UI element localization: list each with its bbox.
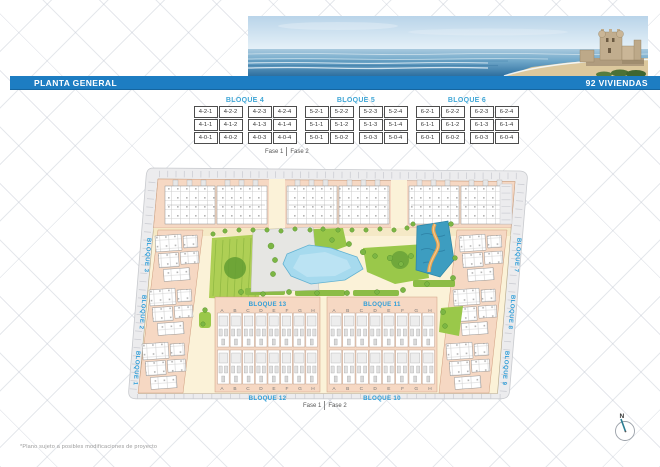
unit-letter: D bbox=[373, 308, 377, 314]
block-table-title: BLOQUE 5 bbox=[304, 97, 408, 104]
unit-cell: 4-2-3 bbox=[248, 106, 272, 118]
bloque-10-label: BLOQUE 10 bbox=[363, 395, 401, 402]
unit-letter: H bbox=[311, 386, 315, 392]
unit-letter: C bbox=[360, 386, 364, 392]
tree-icon bbox=[268, 243, 274, 249]
unit-cell: 6-0-2 bbox=[441, 132, 465, 144]
tree-icon bbox=[211, 232, 215, 236]
tree-icon bbox=[400, 287, 405, 292]
disclaimer-note: *Plano sujeto a posibles modificaciones … bbox=[20, 444, 157, 450]
tree-icon bbox=[223, 229, 227, 233]
unit-cell: 4-1-1 bbox=[194, 119, 218, 131]
tree-icon bbox=[440, 309, 445, 314]
unit-cell: 4-0-2 bbox=[219, 132, 243, 144]
unit-letter: C bbox=[360, 308, 364, 314]
fase2-label: Fase 2 bbox=[290, 149, 308, 155]
unit-letter: G bbox=[298, 308, 302, 314]
unit-letter: E bbox=[272, 386, 275, 392]
tree-icon bbox=[261, 292, 266, 297]
unit-cell: 6-2-3 bbox=[470, 106, 494, 118]
brochure-page: PLANTA GENERAL 92 VIVIENDAS BLOQUE 4 4-2… bbox=[0, 0, 660, 467]
unit-cell: 6-0-3 bbox=[470, 132, 494, 144]
page-title: PLANTA GENERAL bbox=[34, 78, 117, 88]
table-row: 4-1-14-1-24-1-34-1-4 bbox=[194, 119, 297, 131]
block-table-grid: 4-2-14-2-24-2-34-2-44-1-14-1-24-1-34-1-4… bbox=[193, 106, 297, 144]
unit-cell: 5-2-1 bbox=[305, 106, 329, 118]
unit-letter: H bbox=[428, 308, 432, 314]
tree-icon bbox=[408, 253, 413, 258]
tree-icon bbox=[411, 222, 415, 226]
tree-icon bbox=[344, 290, 349, 295]
unit-letter: E bbox=[387, 386, 390, 392]
unit-cell: 5-0-1 bbox=[305, 132, 329, 144]
unit-cell: 6-1-1 bbox=[416, 119, 440, 131]
unit-letter: F bbox=[286, 386, 289, 392]
hero-photo bbox=[248, 16, 648, 76]
unit-cell: 6-2-2 bbox=[441, 106, 465, 118]
phase-gap bbox=[244, 119, 247, 131]
unit-cell: 4-2-2 bbox=[219, 106, 243, 118]
tree-icon bbox=[270, 271, 275, 276]
phase-gap bbox=[244, 132, 247, 144]
unit-cell: 6-2-1 bbox=[416, 106, 440, 118]
tree-icon bbox=[321, 227, 325, 231]
tree-icon bbox=[360, 249, 366, 255]
units-count-label: 92 VIVIENDAS bbox=[586, 78, 648, 88]
unit-cell: 6-1-4 bbox=[495, 119, 519, 131]
tree-icon bbox=[392, 228, 396, 232]
tree-icon bbox=[405, 226, 409, 230]
unit-cell: 5-1-1 bbox=[305, 119, 329, 131]
bloque-11-label: BLOQUE 11 bbox=[363, 301, 401, 308]
table-row: 5-2-15-2-25-2-35-2-4 bbox=[305, 106, 408, 118]
unit-cell: 5-2-3 bbox=[359, 106, 383, 118]
tree-icon bbox=[237, 228, 241, 232]
block-table-grid: 5-2-15-2-25-2-35-2-45-1-15-1-25-1-35-1-4… bbox=[304, 106, 408, 144]
unit-letter: E bbox=[272, 308, 275, 314]
unit-cell: 6-1-3 bbox=[470, 119, 494, 131]
tree-icon bbox=[293, 227, 297, 231]
tree-icon bbox=[203, 308, 208, 313]
tree-icon bbox=[449, 222, 454, 227]
beach-photo-graphic bbox=[248, 16, 648, 76]
unit-letter: B bbox=[233, 386, 236, 392]
tree-icon bbox=[201, 322, 205, 326]
tree-icon bbox=[346, 241, 351, 246]
fase1-label: Fase 1 bbox=[265, 149, 283, 155]
site-plan: ABCDEFGH ABCDEFGH ABCDEFGH ABCDEFGH BLOQ… bbox=[95, 160, 570, 410]
unit-letter: F bbox=[286, 308, 289, 314]
block-table-6: BLOQUE 6 6-2-16-2-26-2-36-2-46-1-16-1-26… bbox=[415, 97, 519, 144]
unit-cell: 4-1-3 bbox=[248, 119, 272, 131]
phase-labels-top: Fase 1 Fase 2 bbox=[265, 147, 309, 156]
unit-letter: F bbox=[401, 308, 404, 314]
tree-icon bbox=[364, 228, 368, 232]
phase-gap bbox=[244, 106, 247, 118]
tree-icon bbox=[336, 228, 340, 232]
unit-cell: 6-1-2 bbox=[441, 119, 465, 131]
tree-icon bbox=[308, 228, 312, 232]
unit-letter: G bbox=[298, 386, 302, 392]
block-table-grid: 6-2-16-2-26-2-36-2-46-1-16-1-26-1-36-1-4… bbox=[415, 106, 519, 144]
unit-cell: 4-0-1 bbox=[194, 132, 218, 144]
table-row: 6-1-16-1-26-1-36-1-4 bbox=[416, 119, 519, 131]
tree-icon bbox=[330, 238, 335, 243]
block-table-4: BLOQUE 4 4-2-14-2-24-2-34-2-44-1-14-1-24… bbox=[193, 97, 297, 144]
unit-letter: B bbox=[346, 308, 349, 314]
tree-icon bbox=[375, 290, 380, 295]
phase-divider bbox=[286, 147, 287, 156]
block-table-title: BLOQUE 4 bbox=[193, 97, 297, 104]
table-row: 5-1-15-1-25-1-35-1-4 bbox=[305, 119, 408, 131]
tree-icon bbox=[286, 289, 291, 294]
north-compass: N bbox=[600, 410, 650, 460]
unit-letter: B bbox=[346, 386, 349, 392]
unit-letter: C bbox=[246, 386, 250, 392]
tree-icon bbox=[443, 324, 448, 329]
unit-cell: 5-1-2 bbox=[330, 119, 354, 131]
unit-cell: 5-0-3 bbox=[359, 132, 383, 144]
unit-letter: G bbox=[414, 308, 418, 314]
unit-letter: H bbox=[311, 308, 315, 314]
tree-icon bbox=[350, 228, 354, 232]
block-table-5: BLOQUE 5 5-2-15-2-25-2-35-2-45-1-15-1-25… bbox=[304, 97, 408, 144]
phase-gap bbox=[466, 119, 469, 131]
phase-gap bbox=[466, 106, 469, 118]
table-row: 4-2-14-2-24-2-34-2-4 bbox=[194, 106, 297, 118]
tree-icon bbox=[251, 228, 255, 232]
unit-cell: 5-0-4 bbox=[384, 132, 408, 144]
bloque-12-label: BLOQUE 12 bbox=[249, 395, 287, 402]
phase-gap bbox=[355, 132, 358, 144]
unit-letter: D bbox=[373, 386, 377, 392]
unit-letter: G bbox=[414, 386, 418, 392]
unit-letter: C bbox=[246, 308, 250, 314]
unit-letter: F bbox=[401, 386, 404, 392]
unit-cell: 4-1-2 bbox=[219, 119, 243, 131]
table-row: 5-0-15-0-25-0-35-0-4 bbox=[305, 132, 408, 144]
tree-icon bbox=[315, 291, 320, 296]
phase-gap bbox=[466, 132, 469, 144]
unit-letter: B bbox=[233, 308, 236, 314]
block-table-title: BLOQUE 6 bbox=[415, 97, 519, 104]
unit-cell: 5-1-4 bbox=[384, 119, 408, 131]
unit-letter: D bbox=[259, 308, 263, 314]
tree-icon bbox=[450, 275, 455, 280]
phase-gap bbox=[355, 106, 358, 118]
unit-cell: 6-2-4 bbox=[495, 106, 519, 118]
unit-cell: 6-0-1 bbox=[416, 132, 440, 144]
tree-icon bbox=[378, 227, 382, 231]
unit-letter: E bbox=[387, 308, 390, 314]
unit-cell: 6-0-4 bbox=[495, 132, 519, 144]
bloque-13-label: BLOQUE 13 bbox=[249, 301, 287, 308]
title-bar: PLANTA GENERAL 92 VIVIENDAS bbox=[10, 76, 660, 90]
unit-cell: 4-0-4 bbox=[273, 132, 297, 144]
tree-icon bbox=[279, 229, 283, 233]
site-plan-graphic: ABCDEFGH ABCDEFGH ABCDEFGH ABCDEFGH BLOQ… bbox=[95, 160, 570, 410]
tree-icon bbox=[453, 256, 458, 261]
table-row: 6-0-16-0-26-0-36-0-4 bbox=[416, 132, 519, 144]
tree-icon bbox=[238, 289, 243, 294]
tree-icon bbox=[373, 254, 378, 259]
unit-letter: H bbox=[428, 386, 432, 392]
unit-cell: 5-2-4 bbox=[384, 106, 408, 118]
tree-icon bbox=[387, 255, 393, 261]
unit-cell: 5-2-2 bbox=[330, 106, 354, 118]
unit-cell: 4-1-4 bbox=[273, 119, 297, 131]
unit-cell: 5-0-2 bbox=[330, 132, 354, 144]
phase-gap bbox=[355, 119, 358, 131]
tree-icon bbox=[399, 262, 404, 267]
table-row: 4-0-14-0-24-0-34-0-4 bbox=[194, 132, 297, 144]
north-label: N bbox=[620, 413, 625, 420]
unit-cell: 4-2-1 bbox=[194, 106, 218, 118]
unit-cell: 5-1-3 bbox=[359, 119, 383, 131]
tree-icon bbox=[265, 228, 269, 232]
table-row: 6-2-16-2-26-2-36-2-4 bbox=[416, 106, 519, 118]
unit-cell: 4-0-3 bbox=[248, 132, 272, 144]
parking-strip bbox=[500, 184, 512, 224]
unit-cell: 4-2-4 bbox=[273, 106, 297, 118]
tree-icon bbox=[272, 257, 277, 262]
unit-letter: D bbox=[259, 386, 263, 392]
tree-icon bbox=[425, 282, 430, 287]
